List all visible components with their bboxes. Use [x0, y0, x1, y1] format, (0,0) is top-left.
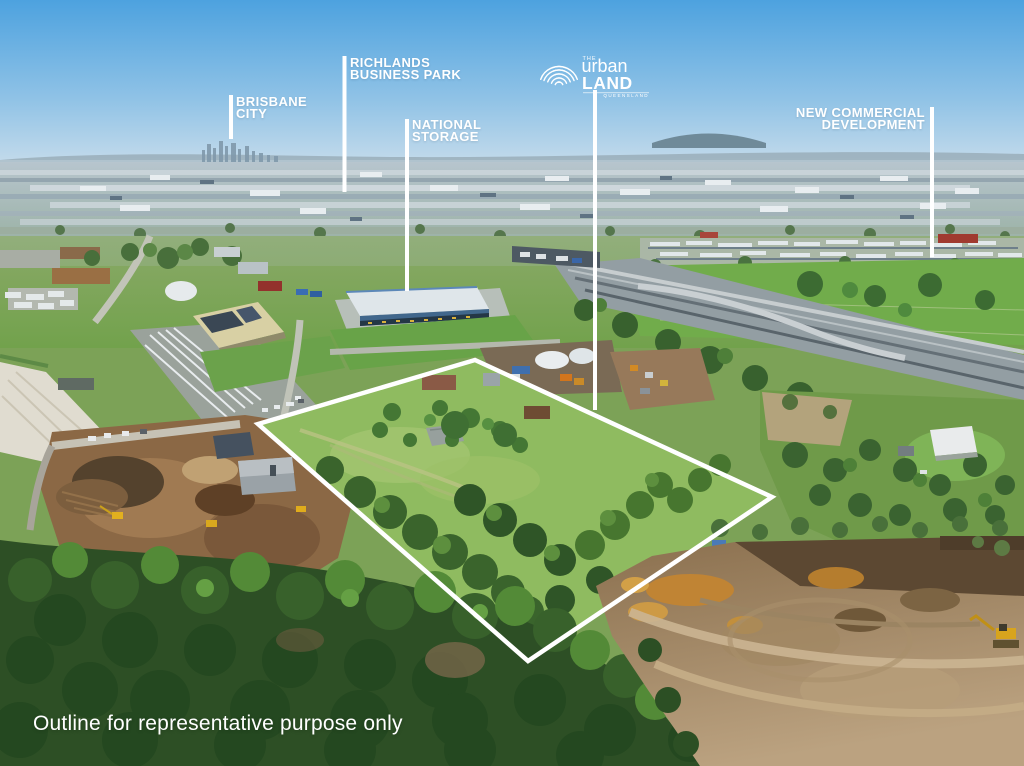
- label-line: DEVELOPMENT: [796, 119, 925, 131]
- sky: [0, 0, 1024, 178]
- excavator: [206, 520, 217, 527]
- label-line: STORAGE: [412, 131, 481, 143]
- fan-shell-icon: [541, 66, 578, 84]
- label-brisbane-city: BRISBANE CITY: [236, 96, 307, 119]
- excavator: [296, 506, 306, 512]
- aerial-photo: BRISBANE CITY RICHLANDS BUSINESS PARK NA…: [0, 0, 1024, 766]
- label-new-commercial-development: NEW COMMERCIAL DEVELOPMENT: [796, 107, 925, 130]
- urban-land-logo: THE urban LAND QUEENSLAND: [540, 48, 652, 98]
- label-national-storage: NATIONAL STORAGE: [412, 119, 481, 142]
- outline-disclaimer: Outline for representative purpose only: [33, 712, 403, 736]
- logo-land: LAND: [582, 73, 633, 93]
- label-line: CITY: [236, 108, 307, 120]
- logo-region: QUEENSLAND: [603, 93, 649, 98]
- machinery-yard: [610, 348, 715, 410]
- industrial-horizon: [0, 162, 1024, 242]
- right-vegetation: [700, 390, 1024, 560]
- white-house: [930, 426, 977, 456]
- label-richlands-business-park: RICHLANDS BUSINESS PARK: [350, 57, 461, 80]
- excavator: [112, 512, 123, 519]
- label-line: BUSINESS PARK: [350, 69, 461, 81]
